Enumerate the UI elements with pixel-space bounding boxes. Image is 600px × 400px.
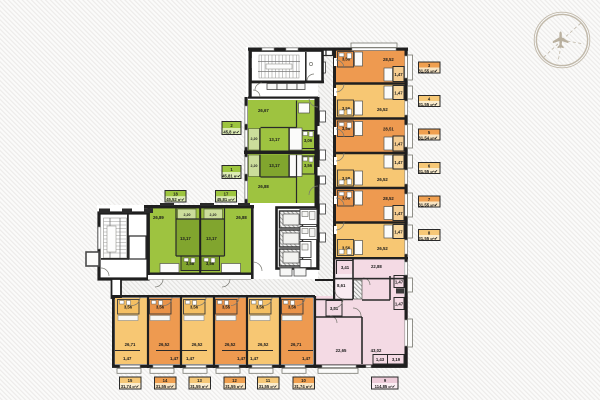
svg-text:1,47: 1,47 [250, 356, 259, 361]
svg-text:45,81 м²✔: 45,81 м²✔ [217, 197, 236, 202]
svg-text:1,43: 1,43 [376, 357, 385, 362]
svg-text:26,52: 26,52 [377, 177, 388, 182]
svg-text:45,81 м²✔: 45,81 м²✔ [222, 174, 241, 179]
svg-text:13: 13 [197, 378, 202, 383]
svg-text:2,20: 2,20 [184, 213, 191, 217]
svg-text:1,47: 1,47 [394, 160, 403, 165]
svg-text:3,06: 3,06 [304, 138, 313, 143]
svg-text:26,52: 26,52 [258, 342, 269, 347]
svg-text:1,47: 1,47 [394, 211, 403, 216]
svg-text:13,17: 13,17 [269, 163, 280, 168]
svg-text:3,19: 3,19 [392, 357, 401, 362]
svg-text:31,74 м²✔: 31,74 м²✔ [121, 384, 140, 389]
svg-text:26,71: 26,71 [125, 342, 136, 347]
svg-text:1,47: 1,47 [237, 356, 246, 361]
svg-text:31,55 м²✔: 31,55 м²✔ [156, 384, 175, 389]
svg-text:26,52: 26,52 [377, 107, 388, 112]
svg-text:3,56: 3,56 [304, 163, 313, 168]
svg-text:28,52: 28,52 [383, 57, 394, 62]
svg-text:13,17: 13,17 [269, 137, 280, 142]
svg-text:10: 10 [301, 378, 306, 383]
svg-text:31,55 м²✔: 31,55 м²✔ [418, 68, 437, 73]
svg-text:31,74 м²✔: 31,74 м²✔ [294, 384, 313, 389]
svg-text:26,88: 26,88 [258, 184, 269, 189]
svg-text:26,52: 26,52 [159, 342, 170, 347]
svg-text:1,47: 1,47 [395, 280, 404, 285]
svg-text:1,47: 1,47 [123, 356, 132, 361]
svg-text:31,54 м²✔: 31,54 м²✔ [418, 135, 437, 140]
svg-text:31,55 м²✔: 31,55 м²✔ [190, 384, 209, 389]
svg-text:2,20: 2,20 [251, 164, 258, 168]
svg-text:14: 14 [163, 378, 168, 383]
svg-text:31,55 м²✔: 31,55 м²✔ [418, 102, 437, 107]
svg-text:31,55 м²✔: 31,55 м²✔ [259, 384, 278, 389]
svg-text:1,47: 1,47 [394, 91, 403, 96]
svg-text:45,52 м²✔: 45,52 м²✔ [166, 197, 185, 202]
svg-text:26,52: 26,52 [192, 342, 203, 347]
svg-text:26,71: 26,71 [291, 342, 302, 347]
svg-text:11: 11 [266, 378, 271, 383]
svg-text:13,17: 13,17 [206, 236, 217, 241]
svg-text:31,55 м²✔: 31,55 м²✔ [225, 384, 244, 389]
svg-text:45,8 м²✔: 45,8 м²✔ [223, 130, 239, 135]
svg-text:28,52: 28,52 [383, 196, 394, 201]
svg-text:1,47: 1,47 [170, 356, 179, 361]
svg-text:8,61: 8,61 [337, 283, 346, 288]
svg-text:22,65: 22,65 [336, 348, 347, 353]
svg-text:31,55 м²✔: 31,55 м²✔ [418, 202, 437, 207]
svg-text:3,41: 3,41 [341, 265, 350, 270]
svg-text:1,47: 1,47 [394, 142, 403, 147]
svg-text:26,67: 26,67 [258, 108, 269, 113]
svg-text:22,88: 22,88 [371, 264, 382, 269]
svg-text:1,47: 1,47 [394, 72, 403, 77]
svg-text:1,47: 1,47 [186, 356, 195, 361]
svg-text:26,89: 26,89 [153, 215, 164, 220]
svg-text:26,52: 26,52 [225, 342, 236, 347]
svg-text:28,51: 28,51 [383, 127, 394, 132]
svg-text:1,47: 1,47 [395, 302, 404, 307]
svg-text:114,85 м²✔: 114,85 м²✔ [375, 384, 396, 389]
svg-text:2,20: 2,20 [251, 137, 258, 141]
svg-text:15: 15 [128, 378, 133, 383]
svg-text:43,02: 43,02 [371, 348, 382, 353]
svg-text:26,52: 26,52 [377, 246, 388, 251]
svg-text:1,47: 1,47 [302, 356, 311, 361]
svg-text:1,47: 1,47 [394, 230, 403, 235]
svg-text:12: 12 [232, 378, 237, 383]
svg-text:2,20: 2,20 [210, 213, 217, 217]
svg-text:13,17: 13,17 [180, 236, 191, 241]
svg-text:18: 18 [173, 192, 178, 197]
svg-text:26,88: 26,88 [236, 215, 247, 220]
svg-text:31,55 м²✔: 31,55 м²✔ [418, 236, 437, 241]
svg-text:17: 17 [224, 192, 229, 197]
svg-text:3,81: 3,81 [330, 306, 339, 311]
svg-text:31,55 м²✔: 31,55 м²✔ [418, 169, 437, 174]
